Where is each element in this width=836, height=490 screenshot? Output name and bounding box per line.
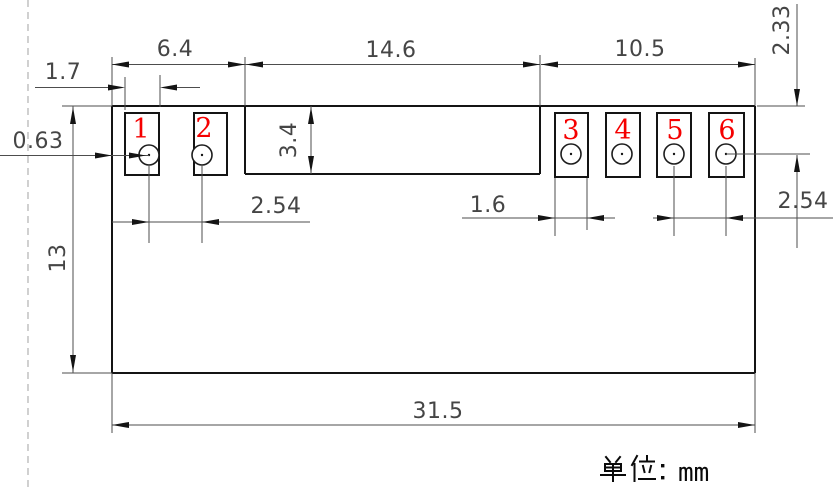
extension-lines	[62, 55, 810, 433]
pin-number-1: 1	[132, 114, 149, 145]
unit-value: mm	[678, 458, 709, 488]
dim-label-31-5: 31.5	[413, 399, 464, 424]
pad-4-hole-center	[621, 153, 623, 155]
arrowhead-left	[112, 62, 129, 68]
dim-body-width: 31.5	[112, 399, 755, 428]
arrowhead-down	[70, 355, 76, 372]
unit-note: mm	[601, 456, 709, 488]
pin-number-5: 5	[666, 115, 683, 146]
dim-left-section-width: 6.4	[112, 37, 245, 68]
arrowhead-right	[738, 422, 755, 428]
dim-right-section-width: 10.5	[541, 37, 755, 68]
dim-label-10-5: 10.5	[615, 37, 666, 62]
dim-label-2-54-left: 2.54	[251, 194, 302, 219]
pad-2-hole-center	[201, 154, 203, 156]
arrowhead-left-pointing	[587, 215, 604, 221]
arrowhead-right	[523, 62, 540, 68]
pad-5-hole-center	[673, 153, 675, 155]
arrowhead-down	[308, 156, 314, 173]
dim-right-pin-pitch: 2.54	[653, 189, 833, 221]
arrowhead-up	[308, 107, 314, 124]
unit-colon-dot-top	[661, 464, 664, 467]
arrowhead-left	[112, 422, 129, 428]
arrowhead-up	[70, 107, 76, 124]
unit-cjk-glyph-dan	[601, 457, 625, 481]
arrowhead-right-pointing	[108, 85, 125, 91]
pin-number-6: 6	[718, 115, 735, 146]
arrowhead-right-pointing	[538, 215, 555, 221]
dim-label-14-6: 14.6	[366, 38, 417, 63]
dim-middle-section-width: 14.6	[245, 38, 540, 68]
arrowhead-left-pointing	[160, 85, 177, 91]
technical-drawing-page: 1 2 3 4 5 6 6.4 14.6	[0, 0, 836, 490]
pin-number-2: 2	[195, 113, 212, 144]
pads	[125, 113, 744, 177]
dim-label-2-54-right: 2.54	[778, 189, 829, 214]
dim-left-pin-pitch: 2.54	[112, 194, 310, 225]
stroke	[643, 466, 645, 472]
arrowhead-right	[228, 62, 245, 68]
dim-label-3-4: 3.4	[277, 122, 302, 159]
dim-notch-depth: 3.4	[277, 106, 314, 174]
arrowhead-down	[794, 89, 800, 106]
arrowhead-right	[738, 62, 755, 68]
dimension-drawing-canvas: 1 2 3 4 5 6 6.4 14.6	[0, 0, 836, 490]
arrowhead-right-pointing	[657, 215, 674, 221]
arrowhead-left-pointing	[202, 219, 219, 225]
dim-label-6-4: 6.4	[157, 37, 194, 62]
unit-colon-dot-bottom	[661, 476, 664, 479]
pad-3-hole-center	[570, 153, 572, 155]
dim-label-1-7: 1.7	[45, 60, 82, 85]
arrowhead-right-pointing	[132, 219, 149, 225]
arrowhead-at-edge	[95, 153, 112, 159]
dim-label-1-6: 1.6	[470, 193, 507, 218]
arrowhead-left	[541, 62, 558, 68]
arrowhead-up	[794, 155, 800, 172]
arrowhead-left	[246, 62, 263, 68]
dim-label-2-33: 2.33	[770, 5, 795, 56]
stroke	[650, 466, 652, 472]
unit-cjk-glyph-wei	[632, 456, 655, 481]
dim-label-13: 13	[46, 244, 71, 273]
stroke	[606, 457, 610, 462]
arrowhead-left-pointing	[726, 215, 743, 221]
stroke	[616, 457, 620, 462]
pin-number-4: 4	[614, 115, 631, 146]
dim-label-0-63: 0.63	[13, 129, 64, 154]
pin-number-3: 3	[562, 115, 579, 146]
dim-right-pad-width: 1.6	[462, 193, 615, 221]
